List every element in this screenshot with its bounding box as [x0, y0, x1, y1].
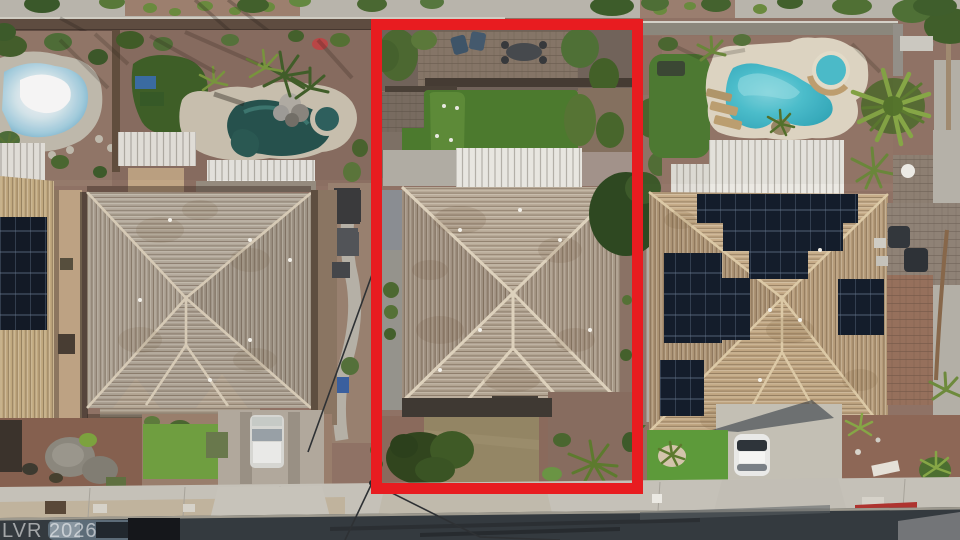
svg-text:LVR 2026: LVR 2026 [2, 520, 97, 540]
